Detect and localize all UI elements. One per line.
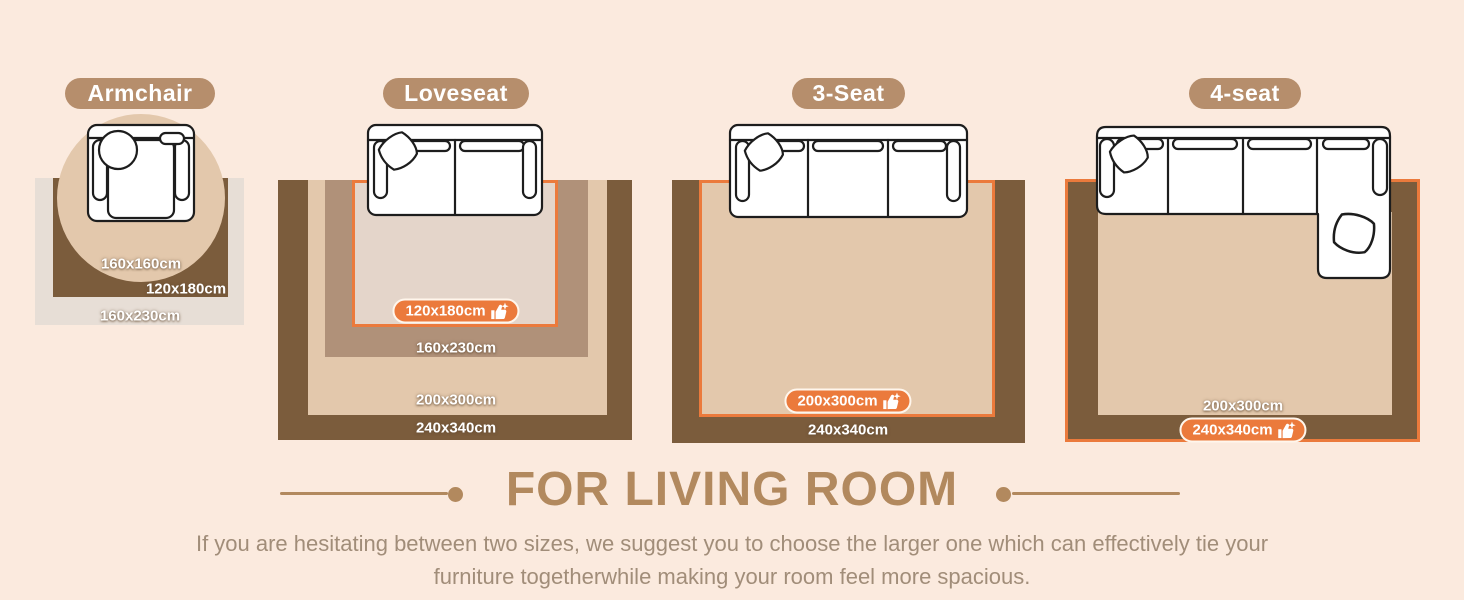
loveseat-top-view-icon — [366, 123, 544, 217]
four-seat-sectional-top-view-icon — [1092, 120, 1393, 282]
panel-title-text: Loveseat — [404, 80, 508, 107]
panel-title-text: 3-Seat — [812, 80, 884, 107]
heading-rule-right — [1012, 492, 1180, 495]
recommended-size-badge: 240x340cm — [1179, 418, 1306, 443]
rug-size-guide-infographic: Armchair 160x160cm 120x180cm 160x230cm L… — [0, 0, 1464, 600]
badge-text: 240x340cm — [1192, 422, 1272, 439]
size-label: 160x230cm — [100, 308, 180, 325]
panel-title-4-seat: 4-seat — [1189, 78, 1301, 109]
section-heading: FOR LIVING ROOM — [0, 466, 1464, 514]
panel-title-armchair: Armchair — [65, 78, 215, 109]
size-label: 240x340cm — [808, 422, 888, 439]
badge-text: 200x300cm — [797, 393, 877, 410]
thumbs-up-icon — [1278, 421, 1297, 439]
heading-dot-right — [996, 487, 1011, 502]
three-seat-sofa-top-view-icon — [727, 123, 969, 219]
panel-title-3-seat: 3-Seat — [792, 78, 905, 109]
size-label: 160x230cm — [416, 340, 496, 357]
recommended-size-badge: 200x300cm — [784, 389, 911, 414]
badge-text: 120x180cm — [405, 303, 485, 320]
description-line-2: furniture togetherwhile making your room… — [0, 564, 1464, 590]
size-label: 200x300cm — [1203, 398, 1283, 415]
size-label: 200x300cm — [416, 392, 496, 409]
panel-title-loveseat: Loveseat — [383, 78, 529, 109]
thumbs-up-icon — [491, 302, 510, 320]
panel-title-text: Armchair — [88, 80, 193, 107]
panel-title-text: 4-seat — [1210, 80, 1279, 107]
size-label: 120x180cm — [146, 281, 226, 298]
size-label: 160x160cm — [101, 256, 181, 273]
description-line-1: If you are hesitating between two sizes,… — [0, 531, 1464, 557]
recommended-size-badge: 120x180cm — [392, 299, 519, 324]
thumbs-up-icon — [883, 392, 902, 410]
size-label: 240x340cm — [416, 420, 496, 437]
armchair-top-view-icon — [85, 118, 197, 225]
